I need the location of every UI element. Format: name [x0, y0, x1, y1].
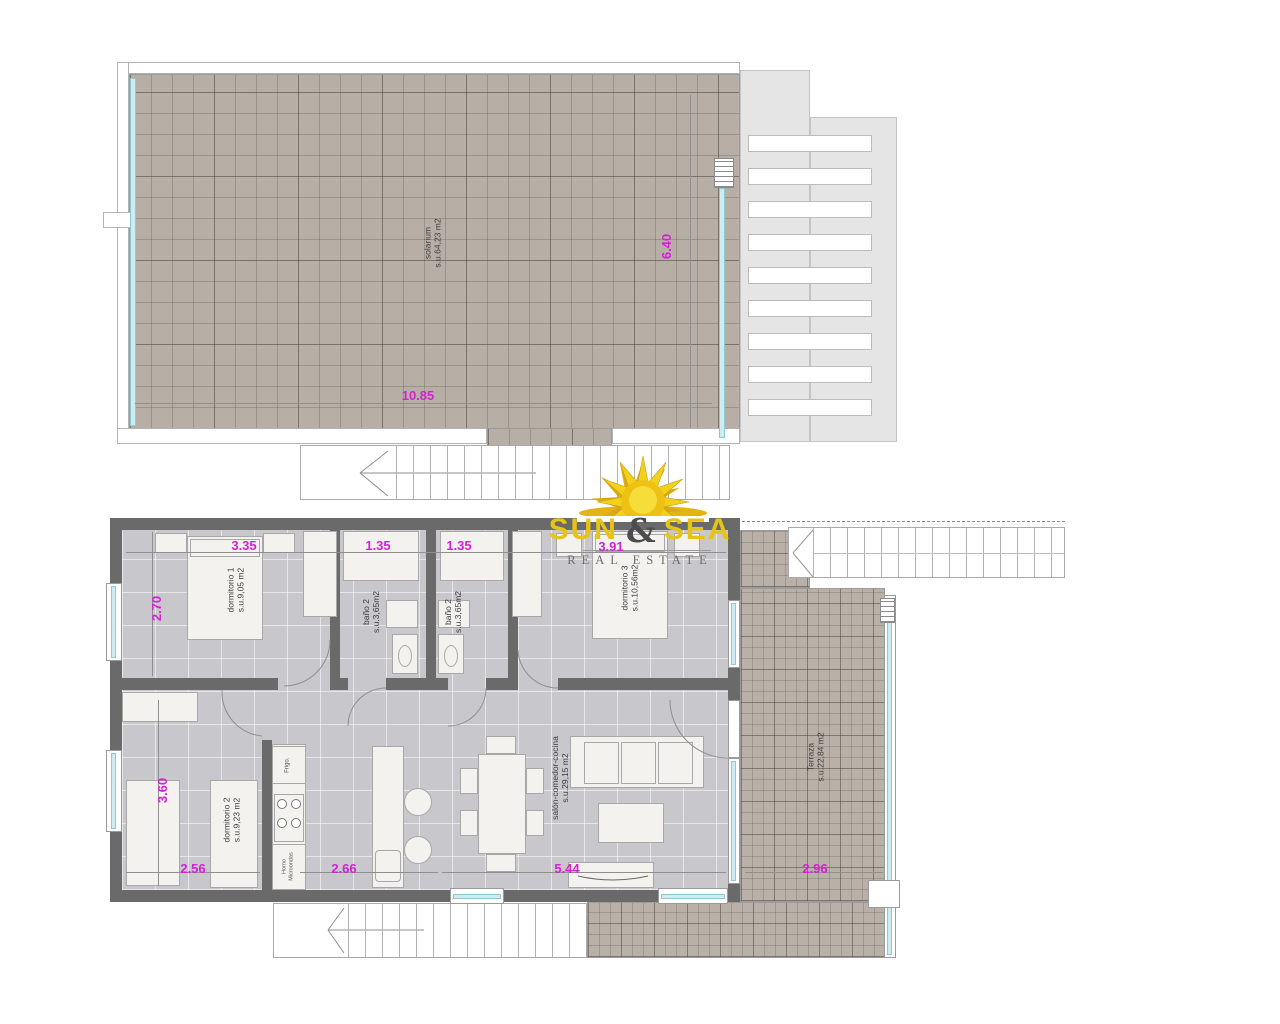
room-label-terraza: Terraza s.u.22,84 m2	[771, 712, 861, 802]
stair-midline	[813, 553, 1064, 554]
stairs-dashed-line	[737, 521, 1065, 522]
sofa-cushion	[621, 742, 656, 784]
room-label-dormitorio1: dormitorio 1 s.u.9,05 m2	[190, 545, 280, 635]
dim-line-solarium-height	[690, 95, 691, 428]
logo-wordmark: SUN & SEA	[548, 512, 732, 548]
solarium-parapet-left	[117, 62, 129, 432]
sofa-cushion	[658, 742, 693, 784]
stove-burner	[277, 818, 287, 828]
chair	[486, 736, 516, 754]
room-label-salon: salón-comedor-cocina s.u.29,15 m2	[515, 733, 605, 823]
dim-dorm3-width: 3.91	[583, 539, 639, 554]
dim-bano-der-width: 1.35	[431, 538, 487, 553]
pergola-upper	[740, 70, 810, 442]
wall-hall-e	[486, 678, 508, 690]
dim-dorm1-width: 3.35	[216, 538, 272, 553]
dim-kitchen-width: 2.66	[316, 861, 372, 876]
solarium-glass-left	[130, 78, 136, 426]
room-name: solarium	[423, 227, 433, 259]
pergola-slat	[748, 135, 872, 152]
dim-dorm1-height: 2.70	[137, 588, 177, 628]
window-salon-bottom-b-glass	[661, 894, 725, 899]
stool	[404, 788, 432, 816]
room-label-bano-der: baño 2 s.u.3,65m2	[408, 567, 498, 657]
wall-hall-d	[436, 678, 448, 690]
terraza-ladder-icon	[880, 598, 895, 623]
floor-plan-sheet: solarium s.u.64,23 m2 6.40 10.85 SUN & S…	[0, 0, 1280, 1024]
window-dorm3-terrace-glass	[731, 603, 736, 665]
stove-burner	[291, 818, 301, 828]
dim-solarium-width: 10.85	[390, 388, 446, 403]
dim-solarium-height: 6.40	[647, 226, 687, 266]
terraza-deck-lower	[587, 902, 885, 958]
stool	[404, 836, 432, 864]
room-label-solarium: solarium s.u.64,23 m2	[383, 193, 483, 293]
pergola-slat	[748, 201, 872, 218]
dim-dorm2-height: 3.60	[143, 770, 183, 810]
terraza-pillar	[868, 880, 900, 908]
closet	[122, 692, 198, 722]
closet	[155, 533, 187, 553]
pergola-slat	[748, 234, 872, 251]
door-opening-terrace	[728, 700, 740, 758]
dim-line-solarium-width	[135, 403, 712, 404]
wall-hall-f	[558, 678, 740, 690]
pergola-slat	[748, 366, 872, 383]
solarium-parapet-top	[117, 62, 740, 74]
dim-dorm2-width: 2.56	[165, 861, 221, 876]
island-sink	[375, 850, 401, 882]
window-dorm2-glass	[111, 753, 116, 829]
room-label-bano-izq: baño 2 s.u.3,65m2	[326, 567, 416, 657]
chair	[460, 768, 478, 794]
coffee-table	[598, 803, 664, 843]
room-label-dormitorio2: dormitorio 2 s.u.9,23 m2	[186, 775, 276, 865]
wall-hall-b	[330, 678, 348, 690]
wall-left	[110, 518, 122, 902]
logo-word-sea: SEA	[664, 513, 732, 547]
wardrobe	[512, 531, 542, 617]
wall-hall-a	[110, 678, 278, 690]
dim-bano-izq-width: 1.35	[350, 538, 406, 553]
room-area: s.u.64,23 m2	[433, 218, 443, 267]
logo-tagline: REAL ESTATE	[552, 553, 728, 568]
stove-burner	[291, 799, 301, 809]
solarium-parapet-notch	[103, 212, 133, 228]
pergola-slat	[748, 300, 872, 317]
pergola-slat	[748, 168, 872, 185]
wall-right-c	[728, 884, 740, 902]
pergola-slat	[748, 333, 872, 350]
dim-terraza-width: 2.96	[787, 861, 843, 876]
wall-bottom	[110, 890, 740, 902]
chair	[460, 810, 478, 836]
solarium-parapet-bottom-left	[117, 428, 487, 444]
stove-burner	[277, 799, 287, 809]
pergola-slat	[748, 267, 872, 284]
window-dorm1-glass	[111, 586, 116, 658]
chair	[486, 854, 516, 872]
stairs-entry-lower	[273, 903, 587, 958]
window-salon-terrace-glass	[731, 761, 736, 881]
pergola-slat	[748, 399, 872, 416]
stair-treads	[348, 904, 586, 957]
wall-hall-c	[386, 678, 426, 690]
solarium-glass-right	[719, 188, 725, 438]
solarium-ladder-icon	[714, 158, 734, 188]
dim-salon-width: 5.44	[539, 861, 595, 876]
stairs-entry-upper	[788, 527, 1065, 578]
window-salon-bottom-a-glass	[453, 894, 501, 899]
